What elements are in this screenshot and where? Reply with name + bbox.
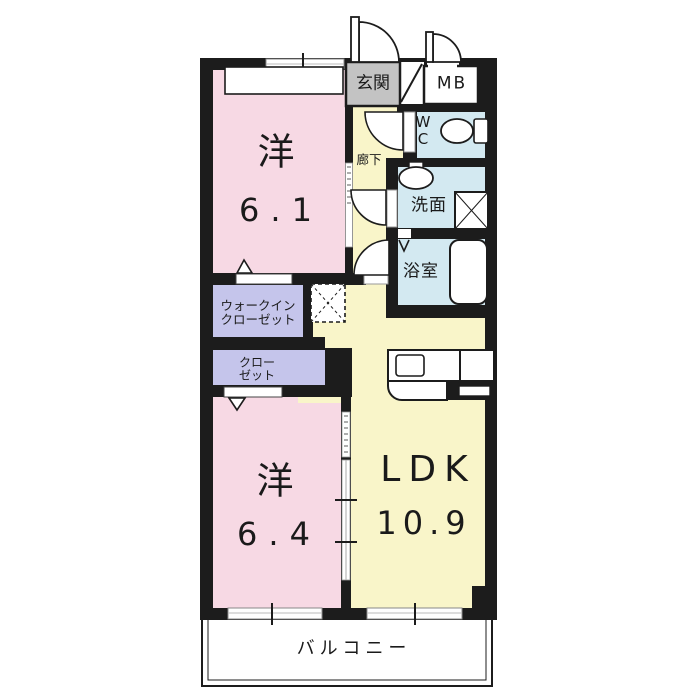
label-bathroom: 浴室: [403, 262, 439, 281]
mb-door-swing-icon: [433, 34, 461, 62]
label-balcony: バルコニー: [297, 639, 412, 659]
label-closet-line1: クロー: [239, 357, 275, 370]
mb-opening-gap: [428, 63, 457, 69]
label-bedroom1-size: 6.1: [239, 193, 323, 229]
mb-door-leaf-icon: [426, 32, 433, 62]
toilet-icon: [441, 119, 488, 143]
label-closet-line2: ゼット: [239, 370, 275, 383]
label-ldk: LDK: [380, 450, 475, 490]
label-toilet-line1: W: [416, 114, 431, 131]
label-entrance: 玄関: [356, 74, 390, 93]
label-walkin-closet-line2: クローゼット: [220, 313, 295, 327]
label-walkin-closet: ウォークイン クローゼット: [220, 299, 295, 327]
label-hallway: 廊下: [356, 153, 381, 167]
sliding-door-bedroom1-icon: [346, 163, 353, 247]
label-bedroom2-size: 6.4: [237, 517, 321, 553]
label-toilet: W C: [416, 114, 431, 148]
bedroom1-closet-icon: [225, 67, 343, 94]
label-toilet-line2: C: [416, 131, 431, 148]
floor-plan-drawing: [0, 0, 700, 700]
entrance-door-swing-icon: [359, 22, 399, 62]
kitchen-counter-icon: [388, 350, 494, 400]
refrigerator-space-icon: [311, 284, 345, 322]
label-meter-box: MB: [437, 74, 467, 93]
label-bedroom1-type: 洋: [258, 131, 295, 172]
label-washroom: 洗面: [411, 196, 447, 215]
floor-plan: 玄関 MB W C 廊下 洗面 浴室 洋 6.1 ウォークイン クローゼット ク…: [0, 0, 700, 700]
label-bedroom2-type: 洋: [257, 460, 294, 501]
label-walkin-closet-line1: ウォークイン: [220, 299, 295, 313]
entrance-door-leaf-icon: [351, 17, 359, 62]
label-ldk-size: 10.9: [376, 506, 471, 542]
bathtub-icon: [450, 240, 487, 304]
label-closet: クロー ゼット: [239, 357, 275, 384]
washing-machine-pan-icon: [455, 192, 488, 229]
